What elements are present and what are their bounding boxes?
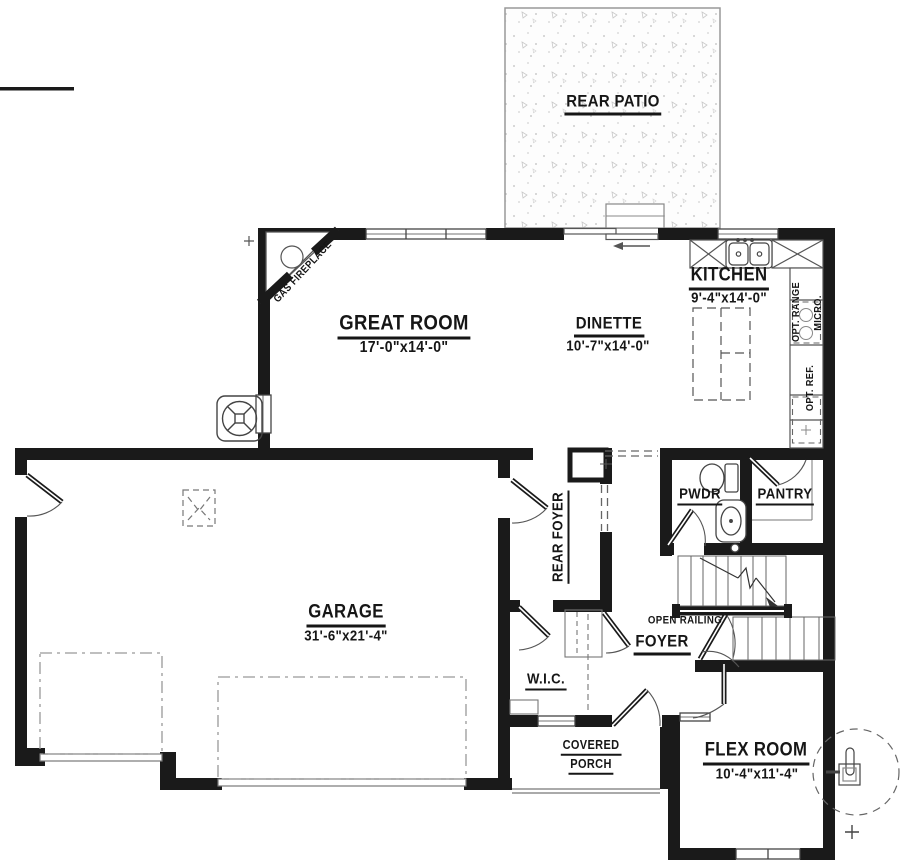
pwdr-label: PWDR [677, 487, 722, 506]
garage-dims: 31'-6"x21'-4" [304, 629, 388, 644]
flex-room-dims: 10'-4"x11'-4" [716, 767, 799, 782]
great-room-dims: 17'-0"x14'-0" [360, 340, 449, 356]
opt-range-label: OPT. RANGE [791, 282, 802, 342]
leader-line [0, 87, 74, 91]
floor-plan-drawing [0, 0, 900, 866]
rear-patio-area [505, 8, 720, 228]
kitchen-dims: 9'-4"x14'-0" [691, 291, 767, 306]
floor-plan: REAR PATIO GREAT ROOM 17'-0"x14'-0" DINE… [0, 0, 900, 866]
great-room-label: GREAT ROOM [338, 313, 471, 340]
wic-details [510, 610, 602, 714]
rear-foyer-label: REAR FOYER [551, 490, 570, 584]
covered-porch-label-line1: COVERED [561, 739, 621, 756]
wic-label: W.I.C. [525, 672, 567, 691]
open-railing-label: OPEN RAILING [648, 616, 722, 627]
flex-room-label: FLEX ROOM [703, 741, 809, 766]
pantry-label: PANTRY [756, 487, 814, 506]
rear-patio-label: REAR PATIO [564, 93, 661, 116]
porch-edge [512, 789, 660, 793]
foyer-label: FOYER [634, 633, 691, 656]
garage-doors [40, 653, 466, 786]
garage-label: GARAGE [306, 603, 385, 628]
kitchen-label: KITCHEN [689, 266, 769, 291]
patio-slider-door [564, 229, 658, 251]
opt-ref-label: OPT. REF. [805, 365, 816, 411]
dinette-dims: 10'-7"x14'-0" [566, 339, 650, 354]
micro-label: MICRO. [813, 295, 824, 330]
attic-access [183, 490, 215, 526]
kitchen-island [693, 308, 750, 400]
covered-porch-label-line2: PORCH [568, 758, 613, 775]
rear-foyer-closet [570, 450, 606, 480]
fan-symbol [217, 396, 262, 441]
dinette-label: DINETTE [574, 315, 644, 338]
